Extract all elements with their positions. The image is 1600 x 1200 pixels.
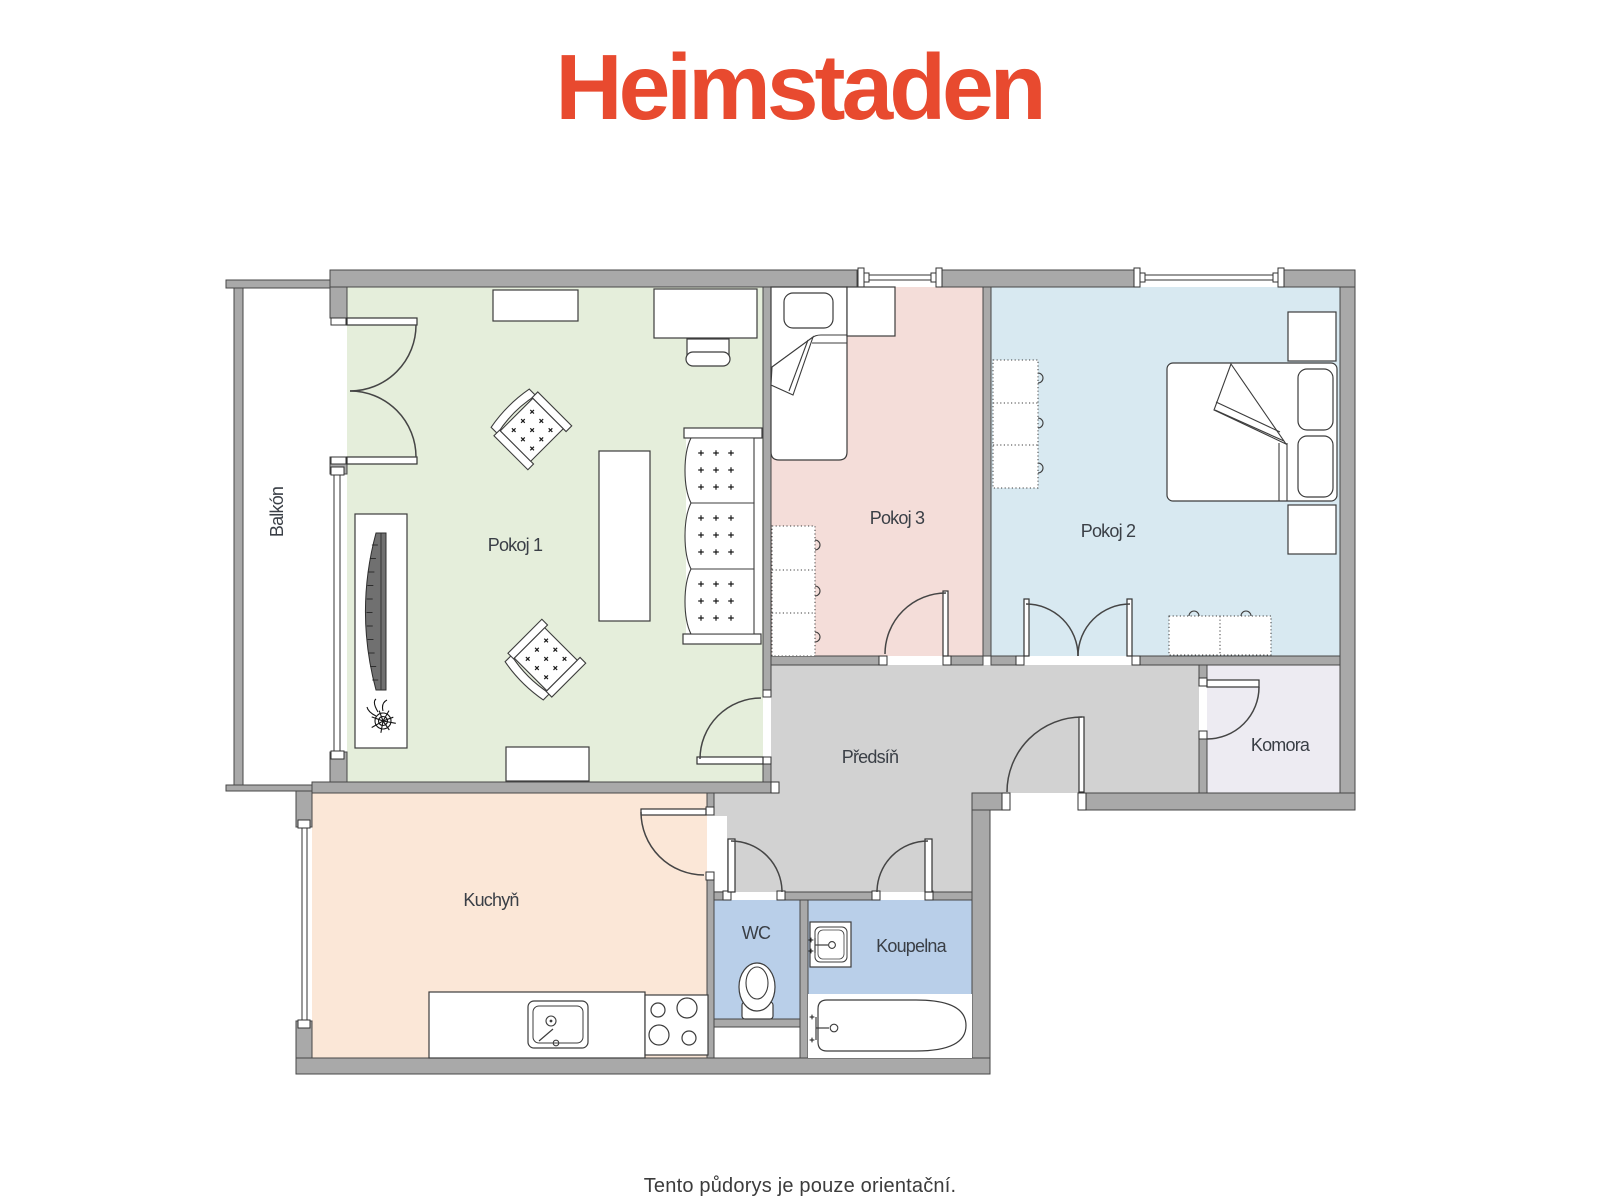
svg-text:Pokoj 2: Pokoj 2 — [1081, 521, 1136, 541]
svg-text:Předsíň: Předsíň — [842, 747, 898, 767]
svg-text:Heimstaden: Heimstaden — [555, 35, 1042, 139]
svg-text:Komora: Komora — [1251, 735, 1311, 755]
svg-text:Kuchyň: Kuchyň — [463, 890, 518, 910]
svg-text:Tento půdorys je pouze orienta: Tento půdorys je pouze orientační. — [644, 1175, 957, 1197]
svg-text:Balkón: Balkón — [267, 487, 287, 537]
svg-text:Pokoj 1: Pokoj 1 — [488, 535, 543, 555]
svg-text:WC: WC — [742, 923, 771, 943]
svg-text:Pokoj 3: Pokoj 3 — [870, 508, 925, 528]
svg-text:Koupelna: Koupelna — [876, 936, 947, 956]
